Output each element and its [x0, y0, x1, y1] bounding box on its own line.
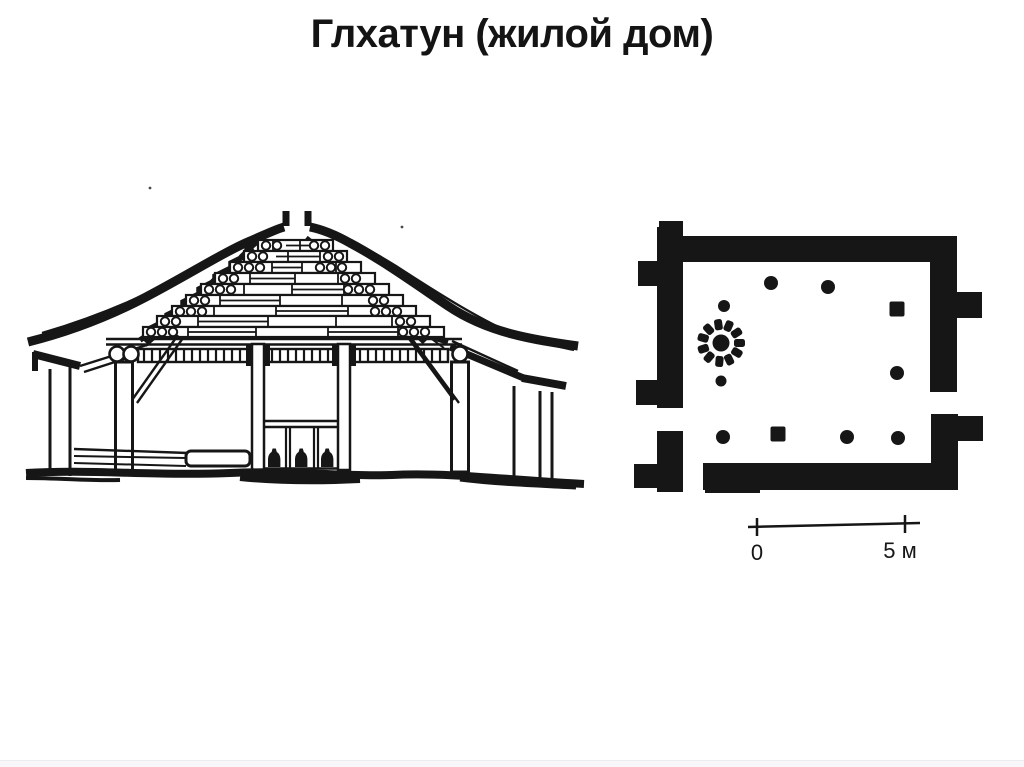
- right-exterior-wall: [514, 386, 552, 480]
- left-exterior-wall: [50, 367, 70, 476]
- right-capital: [453, 347, 468, 362]
- scale-zero-label: 0: [751, 540, 763, 565]
- slide-bottom-edge: [0, 760, 1024, 767]
- scale-end-label: 5 м: [883, 538, 916, 563]
- ground-line: [26, 472, 584, 487]
- section-drawing: [26, 187, 584, 487]
- column-posts: [716, 276, 906, 445]
- scale-bar: 0 5 м: [748, 515, 920, 565]
- figure-canvas: 0 5 м: [0, 0, 1024, 767]
- central-partition: [264, 421, 338, 469]
- purlin-ladder: [138, 349, 448, 362]
- vessel: [321, 449, 333, 468]
- hearth-center: [713, 335, 730, 352]
- scan-speck: [401, 226, 404, 229]
- vessel: [268, 449, 280, 468]
- floor-plan: 0 5 м: [634, 221, 983, 565]
- scan-speck: [149, 187, 152, 190]
- hearth-rosette: [697, 319, 745, 368]
- plan-walls: [634, 221, 983, 493]
- vessel: [295, 449, 307, 468]
- bench: [74, 449, 250, 466]
